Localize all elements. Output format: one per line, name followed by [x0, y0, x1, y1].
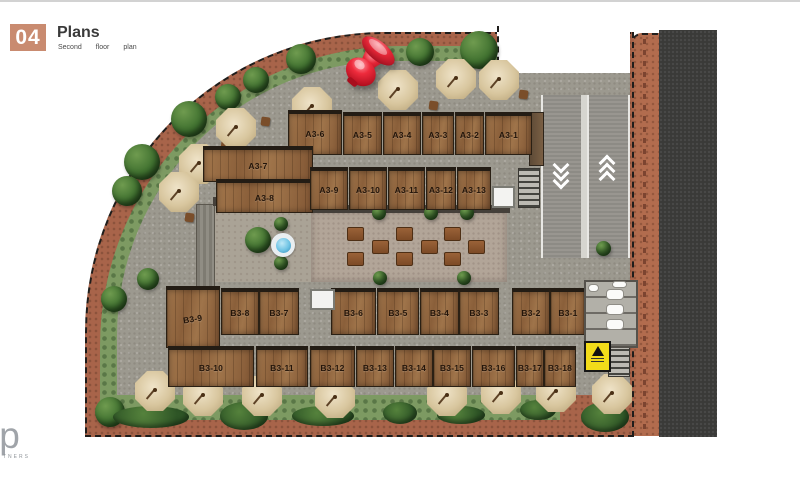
unit-a3-2: A3-2 — [455, 112, 484, 155]
tree — [171, 101, 207, 137]
bush — [457, 271, 471, 285]
courtyard-seat — [444, 227, 461, 241]
unit-label: B3-14 — [402, 363, 426, 373]
unit-label: B3-4 — [430, 308, 449, 318]
umbrella — [216, 108, 256, 148]
unit-b3-8: B3-8 — [221, 288, 259, 335]
chevrons-up-icon — [601, 161, 613, 185]
fountain — [271, 233, 295, 257]
patio-table — [518, 89, 528, 99]
unit-label: B3-3 — [469, 308, 488, 318]
bush — [274, 256, 288, 270]
unit-b3-1: B3-1 — [550, 288, 586, 335]
unit-b3-13: B3-13 — [356, 346, 394, 387]
tree — [245, 227, 271, 253]
unit-label: A3-7 — [248, 161, 267, 171]
patio-table — [184, 212, 194, 222]
unit-b3-12: B3-12 — [310, 346, 355, 387]
unit-label: B3-11 — [270, 363, 294, 373]
unit-b3-2: B3-2 — [512, 288, 550, 335]
bush — [274, 217, 288, 231]
unit-b3-5: B3-5 — [377, 288, 419, 335]
unit-label: A3-6 — [305, 129, 324, 139]
hedge — [383, 402, 417, 424]
site-notch — [497, 26, 630, 73]
unit-b3-18: B3-18 — [544, 346, 576, 387]
unit-label: B3-6 — [344, 308, 363, 318]
brand-caption: TNERS — [3, 454, 30, 460]
unit-label: B3-7 — [269, 308, 288, 318]
parking-ramp — [541, 95, 628, 258]
unit-b3-17: B3-17 — [516, 346, 544, 387]
tree — [101, 286, 127, 312]
unit-label: B3-18 — [548, 363, 572, 373]
unit-b3-14: B3-14 — [395, 346, 433, 387]
brand-logo: lp TNERS — [0, 418, 30, 460]
courtyard-seat — [347, 252, 364, 266]
unit-label: B3-13 — [363, 363, 387, 373]
unit-label: A3-13 — [462, 185, 486, 195]
unit-a3-10: A3-10 — [349, 167, 387, 210]
unit-label: A3-12 — [429, 185, 453, 195]
unit-b3-7: B3-7 — [259, 288, 299, 335]
courtyard-seat — [396, 252, 413, 266]
unit-b3-16: B3-16 — [472, 346, 515, 387]
patio-table — [428, 100, 438, 110]
tree — [243, 67, 269, 93]
sidewalk-strip — [630, 33, 659, 436]
unit-label: A3-11 — [395, 185, 419, 195]
tree — [406, 38, 434, 66]
elevator — [310, 289, 335, 310]
unit-label: B3-1 — [558, 308, 577, 318]
unit-label: B3-17 — [518, 363, 542, 373]
unit-label: A3-2 — [460, 130, 479, 140]
unit-label: B3-2 — [521, 308, 540, 318]
bush — [373, 271, 387, 285]
unit-label: A3-3 — [428, 130, 447, 140]
unit-b3-3: B3-3 — [459, 288, 499, 335]
umbrella — [436, 59, 476, 99]
courtyard-seat — [468, 240, 485, 254]
unit-label: B3-5 — [388, 308, 407, 318]
unit-a3-3: A3-3 — [422, 112, 454, 155]
unit-a3-1: A3-1 — [485, 112, 532, 155]
chevrons-down-icon — [555, 163, 567, 187]
courtyard-seat — [347, 227, 364, 241]
sink — [612, 281, 627, 288]
elevator — [492, 186, 515, 208]
unit-label: A3-8 — [255, 193, 274, 203]
unit-a3-13: A3-13 — [457, 167, 491, 210]
unit-a3-8: A3-8 — [216, 179, 313, 213]
unit-label: B3-10 — [199, 363, 223, 373]
unit-b3-10: B3-10 — [168, 346, 254, 387]
unit-b3-6: B3-6 — [331, 288, 376, 335]
unit-label: B3-16 — [481, 363, 505, 373]
unit-label: B3-9 — [183, 312, 204, 325]
deck-path — [196, 204, 215, 291]
unit-b3-4: B3-4 — [420, 288, 459, 335]
umbrella — [592, 374, 632, 414]
courtyard-seat — [444, 252, 461, 266]
brand-letters: lp — [0, 418, 30, 454]
pushpin-icon — [312, 26, 406, 122]
unit-a3-7: A3-7 — [203, 146, 313, 182]
tree — [137, 268, 159, 290]
unit-b3-15: B3-15 — [433, 346, 471, 387]
unit-a3-12: A3-12 — [426, 167, 456, 210]
unit-label: A3-10 — [356, 185, 380, 195]
courtyard-seat — [396, 227, 413, 241]
tree — [124, 144, 160, 180]
unit-b3-11: B3-11 — [256, 346, 308, 387]
tree — [596, 241, 611, 256]
unit-label: A3-1 — [499, 130, 518, 140]
toilet — [606, 304, 624, 315]
courtyard-seat — [372, 240, 389, 254]
unit-b3-9: B3-9 — [166, 286, 220, 348]
unit-label: A3-9 — [319, 185, 338, 195]
toilet — [606, 289, 624, 300]
unit-label: B3-12 — [320, 363, 344, 373]
patio-table — [260, 116, 270, 126]
sink — [588, 284, 599, 292]
umbrella — [479, 60, 519, 100]
courtyard-seat — [421, 240, 438, 254]
unit-a3-11: A3-11 — [388, 167, 425, 210]
umbrella — [159, 172, 199, 212]
unit-a3-9: A3-9 — [310, 167, 348, 210]
slide: 04 Plans Second floor plan — [0, 0, 800, 495]
staircase — [518, 168, 540, 208]
unit-label: A3-5 — [353, 130, 372, 140]
road-strip — [659, 30, 717, 437]
unit-label: A3-4 — [392, 130, 411, 140]
unit-label: B3-8 — [230, 308, 249, 318]
warning-sign-icon — [584, 341, 611, 372]
tree — [215, 84, 241, 110]
tree — [112, 176, 142, 206]
toilet — [606, 319, 624, 330]
unit-label: B3-15 — [440, 363, 464, 373]
